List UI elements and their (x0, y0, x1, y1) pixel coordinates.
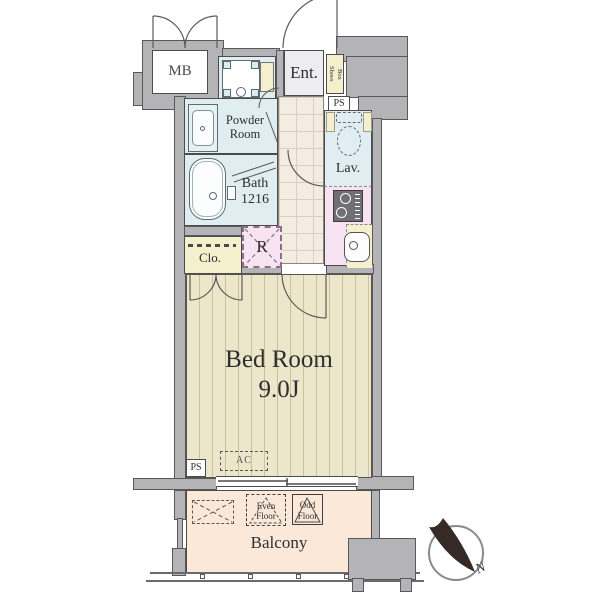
wall-pillar-foot (400, 578, 412, 592)
lav-shelf (363, 112, 372, 132)
floorplan: MB Ent. Shoes Box PS PowderRoom Lav. Bat… (0, 0, 600, 600)
rail-post (248, 574, 253, 579)
entrance-door-icon (283, 0, 337, 48)
lavatory-label: Lav. (324, 158, 372, 180)
odd-floor-label: OddFloor (292, 496, 323, 525)
wall-bottom-right (356, 476, 414, 490)
ps-upper-label: PS (328, 96, 350, 112)
wall-balcony-left-post (177, 518, 183, 550)
wall-bottom-left-cross (133, 478, 217, 490)
lav-shelf (326, 112, 335, 132)
closet-hanger-pipe (188, 244, 236, 247)
compass-north-label: N (469, 557, 493, 581)
sink-faucet (349, 241, 358, 250)
ac-outdoor-box (192, 500, 234, 524)
wall-under-bath (184, 226, 242, 236)
wall-topright-b (346, 56, 408, 98)
stove-grill (355, 193, 360, 219)
pan-corner (223, 61, 231, 69)
toilet-bowl (337, 126, 361, 156)
pan-drain (236, 87, 246, 97)
balcony-label: Balcony (186, 530, 372, 556)
washbasin-drain (200, 126, 205, 131)
wall-pillar-foot (352, 578, 364, 592)
wall-balcony-left (174, 490, 186, 520)
bathtub-inner (192, 161, 223, 217)
ac-label: AC (220, 451, 268, 471)
mb-label: MB (152, 50, 208, 94)
rail-post (296, 574, 301, 579)
stove-burner (340, 193, 351, 204)
hallway (278, 96, 324, 264)
pan-corner (251, 89, 259, 97)
fridge-label: R (242, 226, 282, 268)
toilet-icon (336, 112, 362, 123)
balcony-rail-line (146, 580, 424, 582)
even-floor-label: EvenFloor (246, 496, 286, 526)
entrance-label: Ent. (282, 60, 326, 86)
wall-right-column (372, 118, 382, 484)
pan-corner (223, 89, 231, 97)
stove-burner (336, 207, 347, 218)
pan-corner (251, 61, 259, 69)
bedroom-size-label: 9.0J (186, 376, 372, 404)
powder-room-label: PowderRoom (214, 104, 276, 150)
bedroom-name-label: Bed Room (186, 346, 372, 374)
shoes-box-label: Shoes Box (326, 54, 344, 94)
closet-label: Clo. (184, 248, 236, 268)
ps-lower-label: PS (186, 459, 206, 477)
bathtub-drain (209, 192, 217, 200)
rail-post (200, 574, 205, 579)
bath-label: Bath1216 (234, 172, 276, 212)
window-strip (216, 476, 358, 487)
water-heater (260, 62, 274, 92)
